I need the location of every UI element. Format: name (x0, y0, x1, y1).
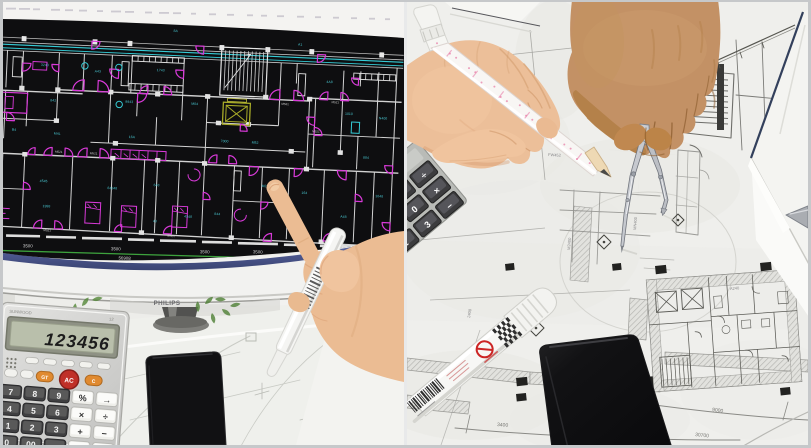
svg-text:M52: M52 (252, 141, 259, 145)
svg-text:+: + (77, 427, 83, 437)
svg-text:×: × (78, 410, 84, 420)
svg-text:GT: GT (41, 375, 48, 382)
svg-text:FW452: FW452 (548, 152, 562, 158)
svg-text:842: 842 (50, 98, 56, 102)
svg-text:A48: A48 (340, 215, 347, 219)
svg-text:M521: M521 (43, 228, 51, 232)
svg-text:M521: M521 (312, 129, 320, 133)
svg-text:4A8: 4A8 (326, 80, 333, 84)
svg-text:164: 164 (301, 191, 307, 195)
svg-text:→: → (102, 395, 112, 406)
svg-text:56908: 56908 (118, 255, 131, 260)
svg-text:43: 43 (153, 219, 157, 223)
svg-text:M521: M521 (90, 151, 98, 155)
svg-text:−: − (101, 429, 107, 439)
svg-text:84348: 84348 (107, 186, 117, 190)
svg-text:%: % (78, 393, 87, 404)
svg-text:1048: 1048 (375, 194, 383, 198)
svg-text:A1: A1 (298, 43, 303, 47)
svg-text:PHILIPS: PHILIPS (154, 300, 181, 307)
svg-text:4545: 4545 (40, 179, 48, 183)
svg-text:3500: 3500 (200, 249, 210, 254)
svg-text:4348: 4348 (184, 215, 192, 219)
svg-text:16A: 16A (129, 135, 136, 139)
svg-text:3243: 3243 (41, 63, 49, 67)
svg-text:884: 884 (363, 156, 369, 160)
svg-text:M521: M521 (281, 102, 289, 106)
svg-text:÷: ÷ (103, 412, 109, 422)
svg-text:N400: N400 (379, 116, 388, 120)
svg-text:M4L: M4L (54, 132, 61, 136)
svg-text:M04: M04 (191, 102, 198, 106)
svg-text:M521: M521 (55, 150, 63, 154)
svg-text:A240: A240 (730, 285, 740, 291)
svg-text:M521: M521 (331, 100, 339, 104)
svg-text:3500: 3500 (253, 249, 263, 254)
svg-text:1743: 1743 (157, 68, 165, 72)
svg-text:A43: A43 (95, 69, 102, 73)
svg-text:3400: 3400 (497, 422, 509, 429)
svg-text:1010: 1010 (345, 112, 353, 116)
svg-text:3500: 3500 (23, 243, 33, 248)
svg-text:648: 648 (153, 183, 159, 187)
svg-text:3500: 3500 (111, 246, 121, 251)
svg-text:B4: B4 (12, 128, 17, 132)
svg-text:M521: M521 (167, 234, 175, 238)
svg-text:844: 844 (214, 212, 220, 216)
svg-text:1998: 1998 (42, 204, 50, 208)
svg-text:7000: 7000 (221, 139, 229, 143)
svg-text:AC: AC (64, 377, 74, 385)
svg-text:9943: 9943 (125, 100, 133, 104)
